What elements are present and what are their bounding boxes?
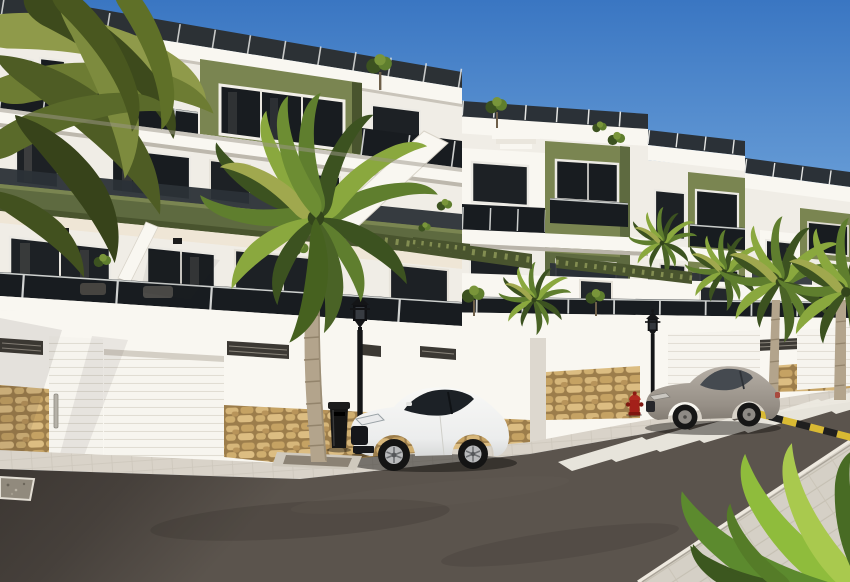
hydrant-base	[629, 412, 641, 416]
balcony-balustrade	[462, 204, 545, 233]
bin-lid	[328, 402, 350, 409]
side-mirror	[406, 402, 412, 406]
wall-lamp	[173, 238, 182, 244]
car-shadow	[347, 454, 517, 472]
license-plate	[353, 446, 374, 453]
palm-trunk	[834, 300, 846, 400]
wheel	[737, 403, 761, 427]
hydrant-side-cap	[626, 402, 630, 406]
bin-slot	[333, 412, 345, 416]
corner-shade	[530, 338, 546, 446]
wheel	[378, 439, 410, 471]
window	[556, 160, 618, 203]
garage-door	[104, 349, 224, 457]
bin-shadow	[327, 448, 351, 453]
balcony-balustrade	[550, 198, 628, 227]
terrace-sofa	[80, 283, 106, 295]
hydrant-top-bolt	[633, 392, 637, 396]
hydrant-side-cap	[639, 402, 643, 406]
taillight	[775, 392, 780, 398]
render-canvas	[0, 0, 850, 582]
stone-base	[546, 366, 640, 420]
door-handle	[54, 394, 58, 428]
wheel	[673, 405, 698, 430]
hydrant-body	[630, 399, 640, 413]
window	[472, 162, 528, 206]
front-grille	[351, 426, 368, 445]
front-grille	[646, 401, 655, 412]
bin-sheen	[333, 410, 334, 446]
planter-gravel	[0, 477, 34, 500]
wheel	[458, 439, 488, 469]
car-shadow	[645, 421, 781, 435]
